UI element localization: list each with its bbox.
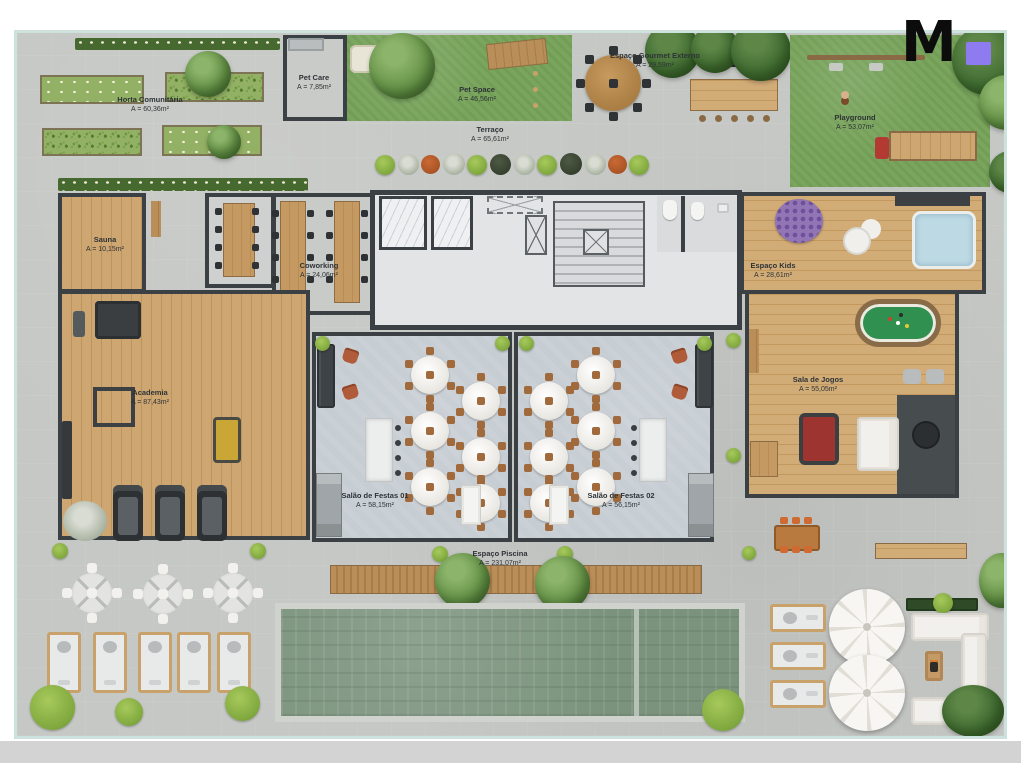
toilet (663, 200, 677, 220)
umbrella (829, 589, 905, 665)
planter-grass (398, 154, 419, 175)
tree (207, 125, 241, 159)
cabinet (549, 485, 569, 525)
umbrella (829, 655, 905, 731)
tree (185, 51, 231, 97)
gourmet-counter (690, 79, 778, 111)
round-table (462, 382, 500, 420)
treadmill (155, 485, 185, 541)
planter-bush (495, 336, 510, 351)
meeting-table (223, 203, 255, 277)
label-sala-de-jogos: Sala de JogosA = 55,05m² (793, 375, 843, 395)
label-espaco-kids: Espaço KidsA = 28,61m² (750, 261, 795, 281)
planter-bush (375, 155, 395, 175)
label-espaco-piscina: Espaço PiscinaA = 231,07m² (472, 549, 527, 569)
elevator-lobby (379, 196, 427, 250)
planter-bush (467, 155, 487, 175)
round-table (530, 382, 568, 420)
swimming-pool (275, 603, 745, 722)
kitchen-appliances (316, 473, 342, 537)
planter-bush (742, 546, 756, 560)
sun-lounger (177, 632, 211, 693)
sun-lounger (138, 632, 172, 693)
pool-bench (330, 565, 702, 594)
bar-table (750, 441, 778, 477)
patio-table (213, 573, 253, 613)
locker-bench (151, 201, 161, 237)
label-terraco: TerraçoA = 65,61m² (471, 125, 509, 145)
sofa (317, 344, 335, 408)
playground-climber (889, 131, 977, 161)
dining-chairs (609, 79, 618, 88)
patio-table (72, 573, 112, 613)
planter-bush (315, 336, 330, 351)
kids-table (845, 229, 869, 253)
round-table (411, 412, 449, 450)
wall (681, 196, 685, 252)
meeting-chairs (215, 208, 222, 215)
shaft-hatch (487, 196, 543, 214)
sideboard (749, 329, 759, 373)
sun-lounger (770, 680, 826, 708)
swing-seat (869, 63, 883, 71)
planter-bush (519, 336, 534, 351)
toilet (691, 202, 704, 220)
sun-lounger (770, 604, 826, 632)
kids-shelf (895, 196, 970, 206)
tree (989, 151, 1007, 193)
hedge-row (58, 178, 308, 191)
tree (979, 553, 1007, 608)
bench (875, 543, 967, 559)
armchairs (903, 369, 921, 384)
sun-lounger (47, 632, 81, 693)
planter-bush (697, 336, 712, 351)
round-table (577, 412, 615, 450)
round-table (577, 356, 615, 394)
round-table (411, 356, 449, 394)
elevator-shaft (583, 229, 609, 255)
label-sauna: SaunaA = 10,15m² (86, 235, 124, 255)
planter-bush (537, 155, 557, 175)
elevator-shaft (525, 215, 547, 255)
label-salao-festas-02: Salão de Festas 02A = 56,15m² (587, 491, 654, 511)
coworking-desk (280, 201, 306, 303)
person-figure (841, 91, 849, 99)
planter-grass (514, 154, 535, 175)
planter-pot (608, 155, 627, 174)
treadmill (197, 485, 227, 541)
planter-bush (629, 155, 649, 175)
planter-bush (250, 543, 266, 559)
sun-lounger (217, 632, 251, 693)
gym-cable-machine (95, 301, 141, 339)
pet-grooming-table (288, 38, 324, 51)
tree (942, 685, 1004, 737)
sofa (695, 344, 713, 408)
screenshot: Horta ComunitáriaA = 60,36m² Pet CareA =… (0, 0, 1021, 763)
bottom-bar (0, 741, 1021, 763)
pool-divider (634, 609, 639, 716)
sink (717, 203, 729, 213)
round-side-table (914, 423, 938, 447)
billiards-table (855, 299, 941, 347)
label-pet-space: Pet SpaceA = 46,56m² (458, 85, 496, 105)
shrub (30, 685, 75, 730)
round-table (462, 438, 500, 476)
shrub (702, 689, 744, 731)
buffet-counter (365, 418, 393, 482)
label-salao-festas-01: Salão de Festas 01A = 58,15m² (341, 491, 408, 511)
gym-machine-yellow (213, 417, 241, 463)
game-table-red (799, 413, 839, 465)
planter-bush (933, 593, 953, 613)
planter-bush (726, 333, 741, 348)
gym-squat-rack (93, 387, 135, 427)
round-table (411, 468, 449, 506)
elevator-lobby (431, 196, 473, 250)
tree (731, 30, 791, 81)
ball-pit (775, 199, 823, 243)
label-coworking: CoworkingA = 24,06m² (300, 261, 339, 281)
swing-seat (829, 63, 843, 71)
planter-dark (560, 153, 582, 175)
label-playground: PlaygroundA = 53,07m² (834, 113, 875, 133)
hedge-row (75, 38, 280, 50)
planter-bush (52, 543, 68, 559)
cabinet (461, 485, 481, 525)
planter-grass (585, 154, 606, 175)
label-horta: Horta ComunitáriaA = 60,36m² (117, 95, 182, 115)
round-table (530, 438, 568, 476)
sofa (857, 417, 899, 471)
gym-bench (73, 311, 85, 337)
kids-pool (912, 211, 976, 269)
sun-lounger (770, 642, 826, 670)
label-gourmet: Espaço Gourmet ExternoA = 29,59m² (610, 51, 700, 71)
patio-table (143, 574, 183, 614)
floor-plan: Horta ComunitáriaA = 60,36m² Pet CareA =… (14, 30, 1007, 739)
label-pet-care: Pet CareA = 7,85m² (297, 73, 331, 93)
outdoor-dining-set (774, 525, 820, 551)
planter-dark (490, 154, 511, 175)
plant (63, 501, 107, 541)
shrub (115, 698, 143, 726)
fire-pit-table (925, 651, 943, 681)
sun-lounger (93, 632, 127, 693)
buffet-counter (639, 418, 667, 482)
shrub (225, 686, 260, 721)
coworking-desk (334, 201, 360, 303)
tree (369, 33, 435, 99)
garden-bed (42, 128, 142, 156)
planter-bush (726, 448, 741, 463)
planter-grass (443, 153, 465, 175)
logo-letter-m: M (901, 10, 954, 75)
logo-purple-square (966, 42, 991, 65)
pet-slalom-posts (533, 71, 538, 76)
treadmill (113, 485, 143, 541)
dumbbell-rack (62, 421, 72, 499)
counter-stools (699, 115, 706, 122)
label-academia: AcademiaA = 87,43m² (131, 388, 169, 408)
kitchen-appliances (688, 473, 714, 537)
planter-pot (421, 155, 440, 174)
playground-slide (875, 137, 889, 159)
